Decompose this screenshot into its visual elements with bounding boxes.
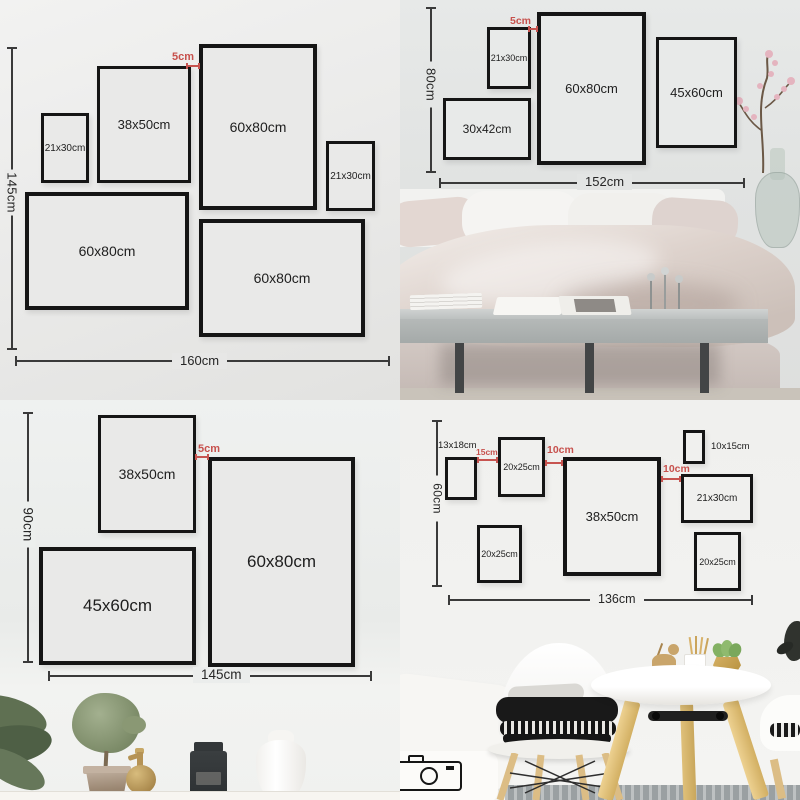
- gap-line: [477, 459, 498, 461]
- plant-shelf-photo: [0, 688, 400, 800]
- glass-vase-body: [755, 172, 800, 248]
- height-dimension-label: 145cm: [5, 170, 20, 216]
- candle-holder-stem: [650, 279, 652, 309]
- frame-30x42: 30x42cm: [443, 98, 531, 160]
- gap-label-5cm: 5cm: [198, 443, 220, 455]
- frame-13x18: [445, 457, 477, 500]
- width-dimension-label: 145cm: [193, 667, 250, 683]
- height-dimension-label: 80cm: [424, 62, 439, 108]
- frame-size-label: 45x60cm: [83, 596, 152, 616]
- width-dimension-label: 152cm: [577, 174, 632, 190]
- frame-size-label: 38x50cm: [586, 509, 639, 524]
- bracket-bolt: [652, 712, 660, 720]
- frame-size-label: 21x30cm: [45, 143, 86, 154]
- frame-size-label: 38x50cm: [119, 466, 176, 482]
- width-dimension-label: 160cm: [172, 353, 227, 369]
- frame-38x50: 38x50cm: [97, 66, 191, 183]
- bench-leg: [700, 343, 709, 393]
- folded-sweater-black: [496, 697, 618, 723]
- candle-holder-stem: [664, 273, 666, 309]
- frame-size-label: 45x60cm: [670, 85, 723, 100]
- camera-lens-icon: [420, 767, 438, 785]
- bench-shadow: [440, 343, 720, 385]
- quadrant-top-left: 145cm 21x30cm 38x50cm 60x80cm 21x30cm 60…: [0, 0, 400, 400]
- terracotta-pot-rim: [83, 766, 131, 774]
- width-dimension-label: 136cm: [590, 591, 644, 607]
- quadrant-top-right: 80cm 21x30cm 60x80cm 45x60cm 30x42cm 5cm…: [400, 0, 800, 400]
- frame-20x25-bottom-left: 20x25cm: [477, 525, 522, 583]
- frame-size-label: 38x50cm: [118, 117, 171, 132]
- jar-label: [196, 772, 221, 785]
- camera-button-icon: [446, 766, 454, 770]
- candle-top: [675, 275, 683, 283]
- book-photo: [574, 299, 616, 312]
- frame-20x25-top: 20x25cm: [498, 437, 545, 497]
- wooden-toy-head: [668, 644, 679, 655]
- frame-size-label: 60x80cm: [230, 119, 287, 135]
- callout-13x18: 13x18cm: [438, 440, 477, 451]
- gap-line: [528, 28, 538, 30]
- bench-leg: [455, 343, 464, 393]
- frame-size-label: 60x80cm: [247, 552, 316, 572]
- candle-top: [647, 273, 655, 281]
- frame-size-guide-collage: 145cm 21x30cm 38x50cm 60x80cm 21x30cm 60…: [0, 0, 800, 800]
- gap-label-5cm: 5cm: [172, 51, 194, 63]
- camera-print-pillow: [400, 751, 498, 800]
- frame-size-label: 21x30cm: [697, 493, 738, 504]
- topiary-tuft: [122, 716, 146, 734]
- tabletop: [591, 665, 771, 705]
- frame-60x80-portrait: 60x80cm: [199, 44, 317, 210]
- bedroom-photo: [400, 185, 800, 400]
- quadrant-bottom-left: 90cm 38x50cm 60x80cm 45x60cm 5cm 145cm: [0, 400, 400, 800]
- frame-size-label: 21x30cm: [491, 53, 528, 63]
- height-dimension-label: 60cm: [430, 476, 445, 522]
- frame-size-label: 60x80cm: [79, 243, 136, 259]
- callout-10x15: 10x15cm: [711, 441, 750, 452]
- frame-size-label: 21x30cm: [330, 171, 371, 182]
- gap-line: [186, 65, 200, 67]
- gap-label-10cm-2: 10cm: [663, 463, 690, 475]
- brass-mister-body: [126, 765, 156, 794]
- frame-size-label: 20x25cm: [481, 549, 518, 559]
- gap-line: [545, 462, 563, 464]
- bracket-bolt: [716, 712, 724, 720]
- partial-chair-cloth: [770, 723, 800, 737]
- camera-top-icon: [408, 755, 424, 763]
- gap-line: [661, 478, 681, 480]
- frame-60x80-landscape-right: 60x80cm: [199, 219, 365, 337]
- frame-45x60: 45x60cm: [656, 37, 737, 148]
- quadrant-bottom-right: 60cm 13x18cm 10x15cm 20x25cm 38x50cm 21x…: [400, 400, 800, 800]
- frame-size-label: 20x25cm: [699, 557, 736, 567]
- gap-label-15cm: 15cm: [476, 447, 498, 457]
- height-dimension-label: 90cm: [21, 502, 36, 548]
- frame-21x30: 21x30cm: [41, 113, 89, 183]
- bench-leg: [585, 343, 594, 393]
- frame-10x15: [683, 430, 705, 464]
- frame-21x30: 21x30cm: [487, 27, 531, 89]
- candle-top: [661, 267, 669, 275]
- dining-nook-photo: [400, 613, 800, 800]
- frame-size-label: 20x25cm: [503, 462, 540, 472]
- frame-size-label: 60x80cm: [254, 270, 311, 286]
- frame-60x80-landscape-left: 60x80cm: [25, 192, 189, 310]
- gap-line: [195, 456, 209, 458]
- frame-38x50: 38x50cm: [98, 415, 196, 533]
- open-book-page: [493, 297, 565, 315]
- magazine-stack: [410, 293, 482, 311]
- frame-38x50: 38x50cm: [563, 457, 661, 576]
- frame-21x30-right: 21x30cm: [326, 141, 375, 211]
- bench-front: [400, 319, 768, 343]
- frame-60x80: 60x80cm: [537, 12, 646, 165]
- frame-size-label: 30x42cm: [463, 122, 512, 136]
- gap-label-10cm: 10cm: [547, 444, 574, 456]
- frame-45x60: 45x60cm: [39, 547, 196, 665]
- camera-icon: [400, 761, 462, 791]
- candle-holder-stem: [678, 281, 680, 309]
- frame-60x80: 60x80cm: [208, 457, 355, 667]
- frame-21x30: 21x30cm: [681, 474, 753, 523]
- frame-size-label: 60x80cm: [565, 81, 618, 96]
- shelf-table-top: [0, 791, 400, 800]
- frame-20x25-bottom-right: 20x25cm: [694, 532, 741, 591]
